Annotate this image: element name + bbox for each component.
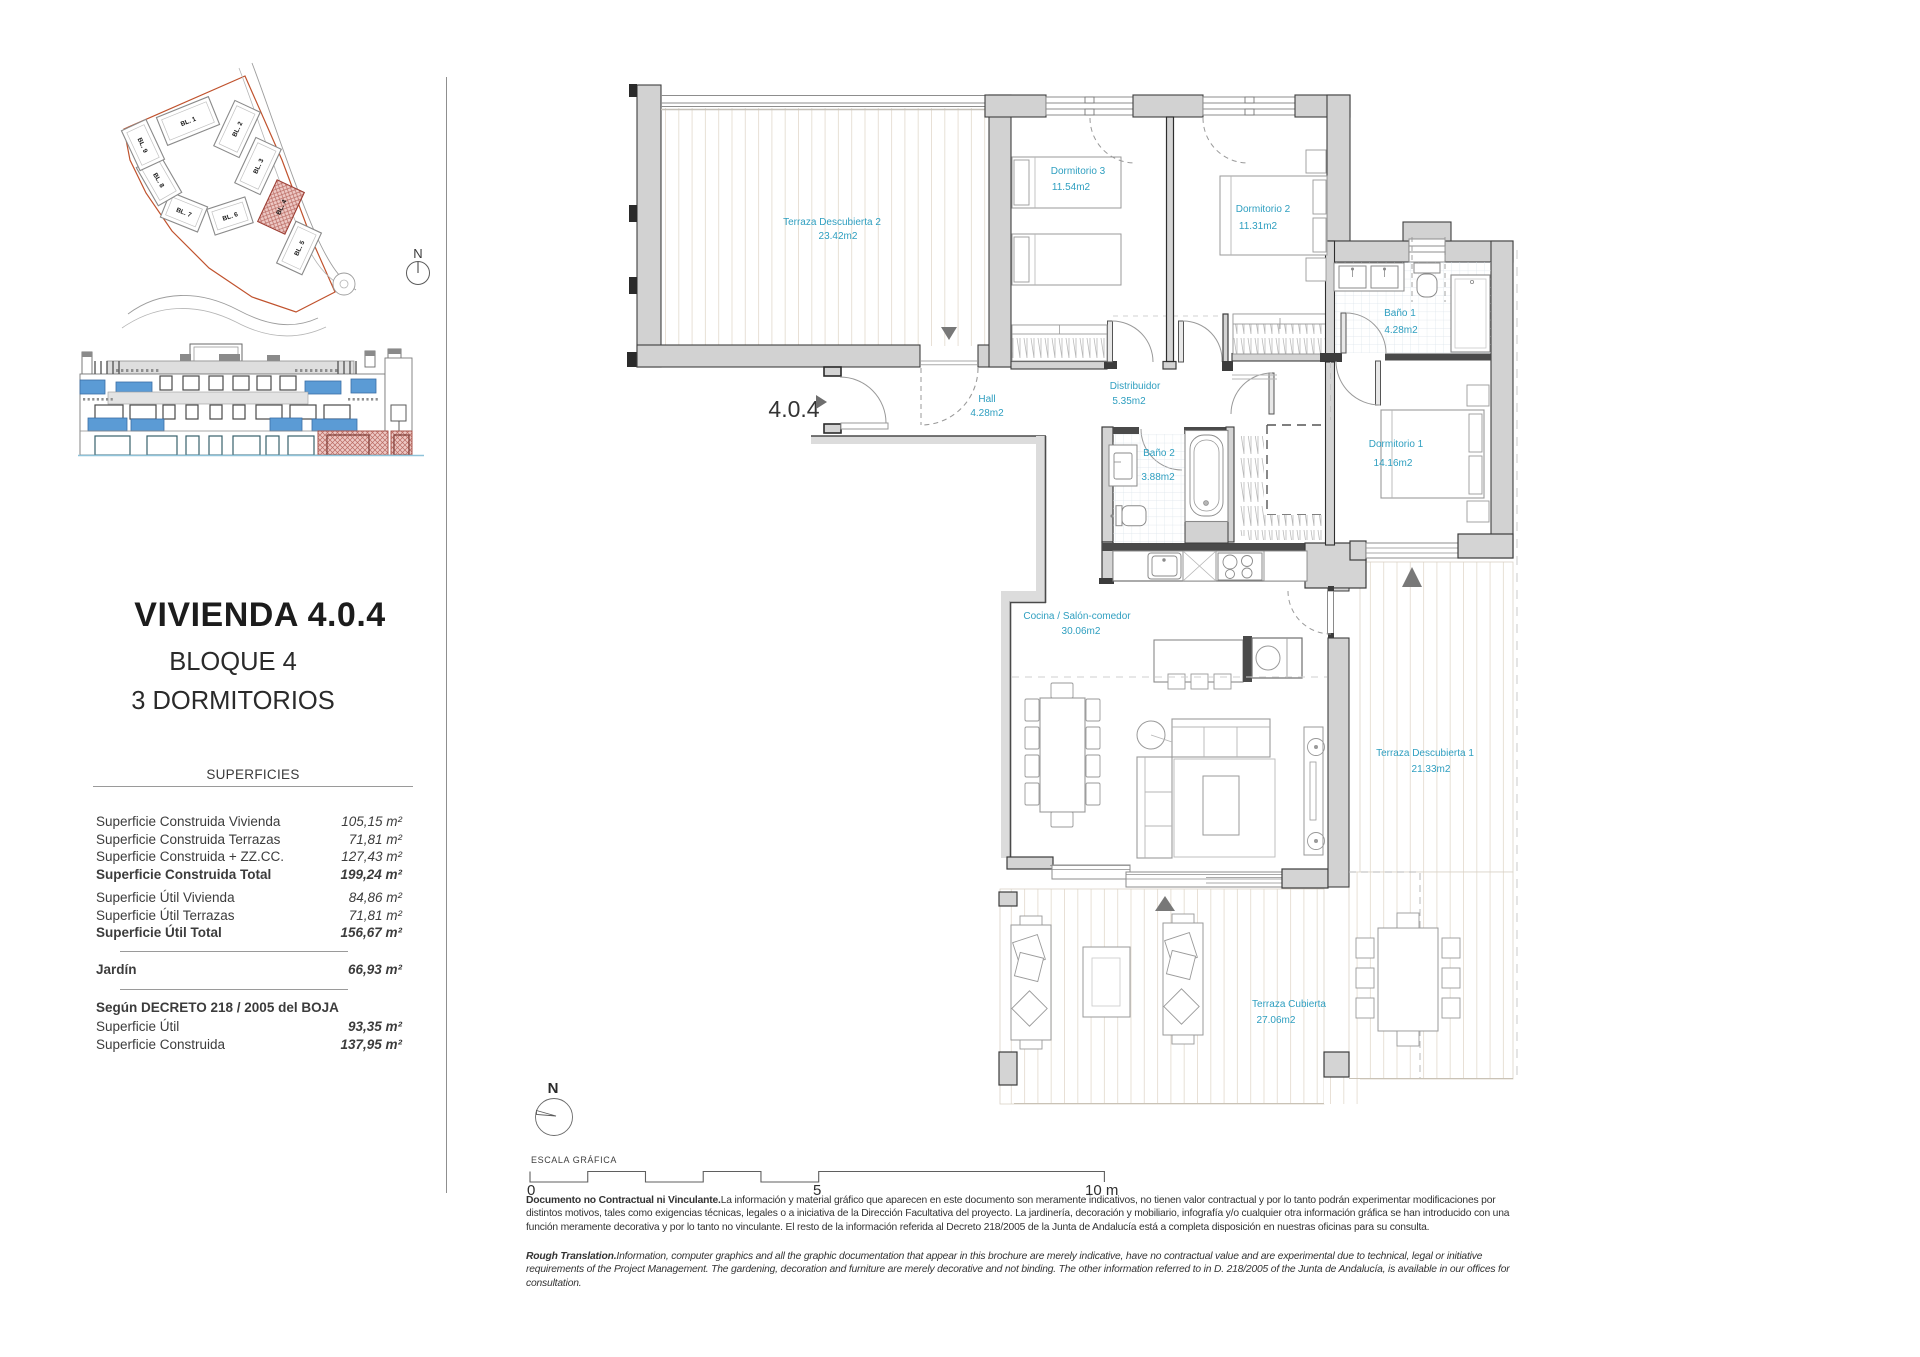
svg-text:5: 5 (813, 1182, 821, 1199)
svg-text:Baño 1: Baño 1 (1384, 308, 1416, 319)
svg-text:Terraza Descubierta 1: Terraza Descubierta 1 (1376, 748, 1474, 759)
svg-text:4.0.4: 4.0.4 (768, 396, 819, 422)
svg-text:Baño 2: Baño 2 (1143, 448, 1175, 459)
svg-text:11.31m2: 11.31m2 (1239, 221, 1278, 232)
svg-text:Terraza Cubierta: Terraza Cubierta (1252, 999, 1326, 1010)
svg-text:14.16m2: 14.16m2 (1374, 458, 1413, 469)
svg-text:N: N (548, 1080, 559, 1097)
svg-text:21.33m2: 21.33m2 (1412, 764, 1451, 775)
svg-text:Distribuidor: Distribuidor (1110, 381, 1161, 392)
svg-text:Cocina / Salón-comedor: Cocina / Salón-comedor (1023, 611, 1131, 622)
svg-text:Dormitorio 1: Dormitorio 1 (1369, 439, 1424, 450)
svg-text:ESCALA GRÁFICA: ESCALA GRÁFICA (531, 1155, 617, 1165)
svg-text:4.28m2: 4.28m2 (970, 408, 1004, 419)
svg-text:Terraza Descubierta 2: Terraza Descubierta 2 (783, 217, 881, 228)
svg-text:10 m: 10 m (1085, 1182, 1118, 1199)
svg-text:3.88m2: 3.88m2 (1141, 472, 1175, 483)
svg-text:Dormitorio 2: Dormitorio 2 (1236, 204, 1291, 215)
svg-text:11.54m2: 11.54m2 (1052, 182, 1091, 193)
svg-text:N: N (413, 246, 422, 261)
svg-text:30.06m2: 30.06m2 (1062, 626, 1101, 637)
svg-text:27.06m2: 27.06m2 (1257, 1015, 1296, 1026)
svg-text:5.35m2: 5.35m2 (1112, 396, 1146, 407)
svg-text:Hall: Hall (978, 394, 995, 405)
svg-text:0: 0 (527, 1182, 535, 1199)
svg-text:Dormitorio 3: Dormitorio 3 (1051, 166, 1106, 177)
svg-text:23.42m2: 23.42m2 (819, 231, 858, 242)
svg-text:4.28m2: 4.28m2 (1384, 325, 1418, 336)
